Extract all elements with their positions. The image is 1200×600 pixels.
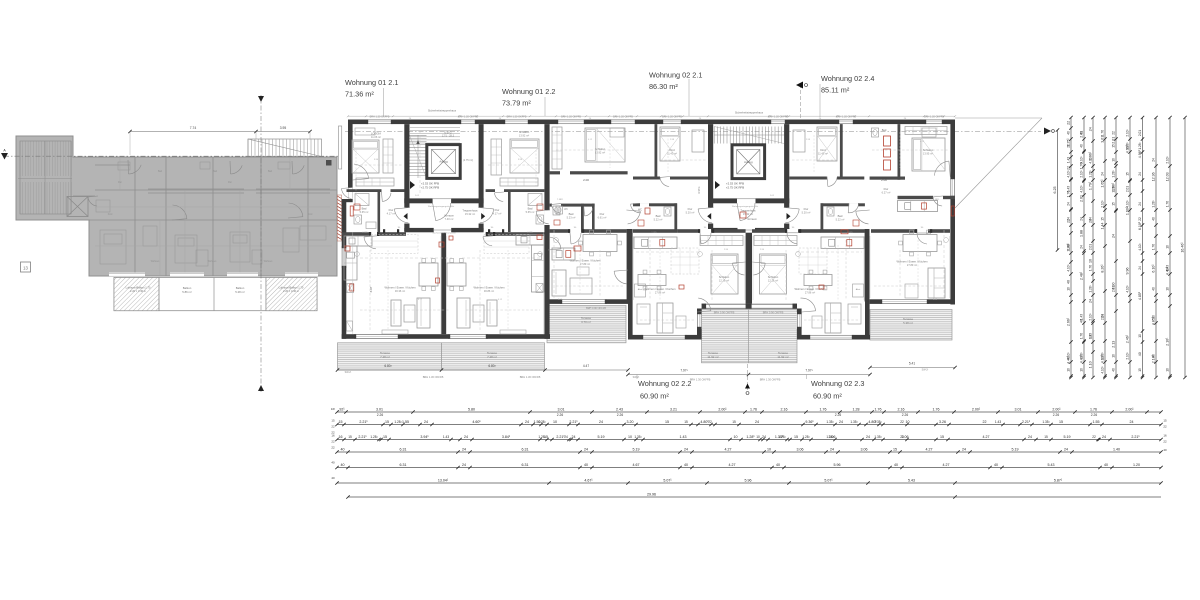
svg-text:Wohnung 02 2.3: Wohnung 02 2.3 — [811, 379, 864, 388]
svg-text:24: 24 — [1080, 217, 1084, 221]
svg-text:Bad: Bad — [158, 171, 163, 173]
svg-text:10: 10 — [1112, 354, 1116, 358]
svg-text:10: 10 — [1080, 368, 1084, 372]
svg-text:2.10¹: 2.10¹ — [1166, 156, 1170, 163]
svg-text:2.00¹: 2.00¹ — [972, 408, 981, 412]
svg-text:5.86 m²: 5.86 m² — [182, 290, 192, 294]
svg-text:4.27: 4.27 — [729, 463, 736, 467]
svg-text:Bad: Bad — [838, 214, 843, 218]
svg-text:10: 10 — [1166, 287, 1170, 291]
svg-text:24: 24 — [1064, 448, 1068, 452]
svg-text:7.385¹: 7.385¹ — [933, 198, 939, 201]
svg-text:Wohnung 02 2.4: Wohnung 02 2.4 — [821, 74, 874, 83]
svg-text:40: 40 — [994, 463, 998, 467]
svg-text:2.10¹: 2.10¹ — [1166, 337, 1170, 346]
svg-text:22: 22 — [1067, 121, 1071, 125]
svg-text:Flur: Flur — [495, 208, 500, 212]
svg-text:1.35¹: 1.35¹ — [634, 435, 641, 439]
svg-text:24: 24 — [1138, 172, 1142, 176]
svg-text:2.46¹: 2.46¹ — [1126, 334, 1130, 343]
svg-text:4.10¹: 4.10¹ — [1126, 200, 1130, 207]
svg-text:Luftraum/Balkon 1.70: Luftraum/Balkon 1.70 — [279, 286, 304, 290]
svg-text:22: 22 — [1163, 425, 1167, 429]
svg-text:Bad: Bad — [882, 128, 887, 132]
svg-text:1.76: 1.76 — [1152, 244, 1156, 250]
svg-text:Wohnung 01 2.1: Wohnung 01 2.1 — [345, 78, 398, 87]
svg-text:16.46¹: 16.46¹ — [1181, 242, 1185, 253]
svg-text:2.10¹: 2.10¹ — [1089, 313, 1093, 320]
svg-text:24: 24 — [462, 463, 466, 467]
svg-text:BRH 1.20 OKFFB: BRH 1.20 OKFFB — [924, 115, 944, 118]
svg-text:BRH 1.30 OKFFB: BRH 1.30 OKFFB — [423, 375, 444, 379]
svg-text:Schlafen: Schlafen — [595, 147, 606, 151]
svg-text:29.96: 29.96 — [647, 493, 656, 497]
svg-text:6.80²: 6.80² — [488, 364, 495, 368]
svg-text:11.43 m²: 11.43 m² — [667, 152, 677, 156]
svg-text:22: 22 — [708, 420, 712, 424]
svg-text:40: 40 — [1152, 354, 1156, 358]
svg-text:1.28¹: 1.28¹ — [1138, 142, 1142, 149]
svg-text:16: 16 — [339, 435, 343, 439]
svg-text:2.21¹: 2.21¹ — [1131, 435, 1140, 439]
svg-text:24: 24 — [525, 420, 529, 424]
svg-text:1.43: 1.43 — [1080, 314, 1084, 320]
svg-text:15: 15 — [383, 435, 387, 439]
svg-text:4.47: 4.47 — [583, 364, 589, 368]
svg-text:22: 22 — [1067, 144, 1071, 148]
svg-text:1.76: 1.76 — [1089, 265, 1093, 271]
svg-text:3.21: 3.21 — [670, 408, 677, 412]
svg-text:2.10¹: 2.10¹ — [1080, 170, 1084, 177]
svg-text:10: 10 — [1138, 334, 1142, 338]
svg-text:(2.75 m²): (2.75 m²) — [463, 159, 473, 162]
svg-text:4.10¹: 4.10¹ — [1126, 285, 1130, 292]
svg-text:1.40: 1.40 — [1113, 448, 1120, 452]
svg-text:2.26: 2.26 — [557, 413, 564, 417]
svg-text:15: 15 — [339, 420, 343, 424]
svg-text:1.20: 1.20 — [1133, 463, 1140, 467]
svg-text:2.26: 2.26 — [1091, 413, 1098, 417]
svg-text:Vorraum: Vorraum — [747, 217, 757, 221]
svg-text:24: 24 — [962, 448, 966, 452]
svg-text:1.28¹: 1.28¹ — [778, 435, 785, 439]
svg-text:40: 40 — [1138, 352, 1142, 356]
svg-text:40: 40 — [1104, 463, 1108, 467]
svg-text:4.27: 4.27 — [725, 448, 732, 452]
svg-text:24: 24 — [1067, 217, 1071, 221]
svg-text:40: 40 — [894, 463, 898, 467]
svg-text:40: 40 — [341, 463, 345, 467]
svg-text:Flur: Flur — [804, 207, 809, 211]
svg-text:2.385: 2.385 — [847, 232, 853, 234]
svg-text:60.90 m²: 60.90 m² — [640, 392, 669, 401]
svg-text:1.28¹: 1.28¹ — [826, 435, 833, 439]
svg-text:BRH 1.20 OKFFB: BRH 1.20 OKFFB — [458, 115, 478, 118]
svg-text:1.43: 1.43 — [1067, 186, 1071, 192]
svg-text:15: 15 — [684, 420, 688, 424]
svg-text:1.76: 1.76 — [933, 408, 940, 412]
svg-text:24: 24 — [564, 435, 568, 439]
svg-text:40: 40 — [1152, 287, 1156, 291]
svg-text:6.31: 6.31 — [400, 463, 407, 467]
svg-text:SW-2¹: SW-2¹ — [922, 369, 929, 372]
svg-text:2.43: 2.43 — [616, 408, 623, 412]
svg-text:Bad: Bad — [656, 214, 661, 218]
svg-text:2.01: 2.01 — [1138, 130, 1142, 136]
svg-text:1.35¹: 1.35¹ — [1042, 420, 1049, 424]
svg-text:5.07¹: 5.07¹ — [824, 479, 833, 483]
svg-text:BRH 1.20 OKFFB: BRH 1.20 OKFFB — [613, 115, 633, 118]
svg-text:10: 10 — [1152, 315, 1156, 319]
svg-text:13.04¹: 13.04¹ — [438, 479, 449, 483]
svg-text:17/1 · 28.3: 17/1 · 28.3 — [442, 135, 455, 138]
svg-text:22: 22 — [331, 425, 335, 429]
svg-text:2.66¹: 2.66¹ — [1067, 317, 1071, 326]
svg-text:7.48 m²: 7.48 m² — [380, 355, 390, 359]
svg-text:1.55: 1.55 — [1093, 420, 1100, 424]
svg-text:24: 24 — [1138, 202, 1142, 206]
svg-text:BRH 1.20 OKFFB: BRH 1.20 OKFFB — [662, 115, 682, 118]
svg-text:27.86 m²: 27.86 m² — [805, 291, 815, 295]
svg-text:4.10¹: 4.10¹ — [1101, 366, 1105, 373]
svg-text:22: 22 — [900, 420, 904, 424]
svg-text:1.35¹: 1.35¹ — [826, 420, 833, 424]
svg-text:24: 24 — [1028, 435, 1032, 439]
svg-text:1.28¹: 1.28¹ — [1112, 185, 1116, 192]
svg-text:22: 22 — [1112, 131, 1116, 135]
svg-text:2.00¹: 2.00¹ — [1052, 408, 1061, 412]
svg-text:+2.75 OK RFB: +2.75 OK RFB — [726, 185, 744, 189]
svg-text:24: 24 — [1089, 127, 1093, 131]
svg-text:2.48¹: 2.48¹ — [1080, 271, 1084, 280]
svg-text:10: 10 — [1112, 158, 1116, 162]
svg-text:6.25: 6.25 — [1053, 187, 1057, 194]
svg-text:Kind: Kind — [108, 214, 113, 216]
svg-text:2.385: 2.385 — [362, 232, 368, 234]
svg-text:1.76: 1.76 — [1101, 130, 1105, 136]
svg-text:Flur: Flur — [600, 212, 605, 216]
svg-text:40: 40 — [1067, 280, 1071, 284]
svg-text:27.89 m²: 27.89 m² — [580, 262, 590, 266]
svg-text:Bad: Bad — [569, 212, 574, 216]
svg-text:4.10¹: 4.10¹ — [1080, 156, 1084, 163]
svg-text:1.88: 1.88 — [1080, 230, 1084, 237]
svg-text:1.28¹: 1.28¹ — [1112, 170, 1116, 177]
svg-text:27.89 m²: 27.89 m² — [907, 263, 917, 267]
svg-text:60.90 m²: 60.90 m² — [813, 392, 842, 401]
svg-text:3.06: 3.06 — [861, 448, 868, 452]
svg-text:5.22 m²: 5.22 m² — [654, 217, 663, 221]
svg-text:Wohnen: Wohnen — [264, 261, 273, 263]
svg-text:24: 24 — [755, 420, 759, 424]
svg-text:4.10¹: 4.10¹ — [1067, 170, 1071, 177]
svg-text:1.28¹: 1.28¹ — [538, 420, 545, 424]
svg-text:Wohnungseingangstür Wst: Wohnungseingangstür Wst — [428, 205, 455, 208]
svg-text:4.10¹: 4.10¹ — [1138, 243, 1142, 250]
svg-text:Bad: Bad — [528, 206, 533, 210]
svg-text:22: 22 — [331, 440, 335, 444]
svg-text:15: 15 — [1101, 217, 1105, 221]
svg-text:2.20 × 3.30 m: 2.20 × 3.30 m — [283, 289, 299, 293]
svg-text:2.26: 2.26 — [377, 413, 384, 417]
svg-text:6.31: 6.31 — [400, 448, 407, 452]
svg-text:15: 15 — [1163, 419, 1167, 423]
svg-text:12.03: 12.03 — [1166, 172, 1170, 181]
svg-text:BRH 1.30 OKFFB: BRH 1.30 OKFFB — [520, 375, 541, 379]
svg-text:2.26: 2.26 — [617, 413, 624, 417]
svg-text:2.10¹: 2.10¹ — [1126, 352, 1130, 359]
svg-text:1.28¹: 1.28¹ — [746, 435, 755, 439]
svg-text:1.43: 1.43 — [443, 435, 449, 439]
svg-text:24: 24 — [830, 448, 834, 452]
svg-text:13: 13 — [23, 265, 28, 270]
svg-text:10: 10 — [1166, 245, 1170, 249]
svg-text:9.36¹: 9.36¹ — [805, 420, 814, 424]
svg-text:12.36: 12.36 — [1152, 172, 1156, 181]
svg-text:22: 22 — [983, 420, 987, 424]
svg-text:5.22 m²: 5.22 m² — [836, 217, 845, 221]
svg-text:7.40 m²: 7.40 m² — [445, 217, 454, 221]
svg-text:10: 10 — [553, 420, 557, 424]
svg-text:2.01: 2.01 — [1126, 186, 1130, 192]
svg-text:BRH 1.30 OKFFB: BRH 1.30 OKFFB — [690, 378, 711, 382]
svg-text:15: 15 — [1138, 368, 1142, 372]
svg-text:4.27: 4.27 — [983, 435, 990, 439]
svg-text:Flur: Flur — [228, 181, 232, 184]
svg-text:6.31: 6.31 — [522, 448, 529, 452]
svg-text:40: 40 — [1152, 217, 1156, 221]
svg-text:1.28¹: 1.28¹ — [802, 435, 809, 439]
svg-text:1.76: 1.76 — [1080, 333, 1084, 339]
svg-text:2.26: 2.26 — [835, 413, 842, 417]
svg-text:2.01: 2.01 — [1089, 244, 1093, 250]
svg-text:2.26: 2.26 — [902, 413, 909, 417]
svg-text:1.55: 1.55 — [402, 420, 409, 424]
svg-text:13.92 m²: 13.92 m² — [519, 134, 529, 138]
svg-text:24: 24 — [866, 435, 870, 439]
svg-text:5.23 m²: 5.23 m² — [567, 216, 576, 220]
svg-text:6.27 m²: 6.27 m² — [882, 191, 891, 195]
svg-text:Flur: Flur — [884, 187, 889, 191]
svg-text:1.28¹: 1.28¹ — [370, 435, 377, 439]
svg-text:5.19: 5.19 — [1064, 435, 1071, 439]
svg-text:10: 10 — [767, 448, 771, 452]
svg-text:1.43: 1.43 — [1166, 265, 1170, 271]
svg-text:2.21¹: 2.21¹ — [1022, 420, 1031, 424]
svg-text:1.65¹: 1.65¹ — [1101, 179, 1105, 188]
svg-text:5.87¹: 5.87¹ — [1054, 479, 1063, 483]
svg-text:Bad: Bad — [362, 206, 367, 210]
svg-text:Aufzug: Aufzug — [439, 160, 448, 164]
svg-text:24: 24 — [684, 448, 688, 452]
svg-text:1.79¹: 1.79¹ — [1089, 181, 1093, 190]
svg-text:Nachweisverfahrung Wst: Nachweisverfahrung Wst — [432, 232, 456, 235]
svg-text:7.97²: 7.97² — [805, 368, 812, 372]
svg-text:10: 10 — [1067, 368, 1071, 372]
svg-text:1.10: 1.10 — [1089, 361, 1093, 368]
svg-text:24: 24 — [584, 448, 588, 452]
svg-text:4.17 m²: 4.17 m² — [493, 212, 502, 216]
svg-text:71.36 m²: 71.36 m² — [345, 90, 374, 99]
svg-text:5.38 m²: 5.38 m² — [903, 321, 913, 325]
svg-text:Wohnen: Wohnen — [151, 261, 160, 263]
svg-text:10: 10 — [1067, 287, 1071, 291]
svg-text:30.36 m²: 30.36 m² — [395, 289, 405, 293]
svg-text:BRH 1.20 OKFFB: BRH 1.20 OKFFB — [768, 115, 788, 118]
svg-text:15: 15 — [348, 435, 352, 439]
svg-text:4.17 m²: 4.17 m² — [387, 212, 396, 216]
svg-text:24: 24 — [599, 420, 603, 424]
svg-text:1.28¹: 1.28¹ — [1080, 352, 1084, 359]
svg-text:7.385¹: 7.385¹ — [557, 198, 563, 201]
svg-text:2.16: 2.16 — [781, 408, 788, 412]
svg-text:4.10¹: 4.10¹ — [1080, 185, 1084, 192]
svg-text:40: 40 — [584, 463, 588, 467]
svg-text:Wohnen / Essen / Küchen: Wohnen / Essen / Küchen — [384, 285, 416, 289]
svg-text:6.61 m²: 6.61 m² — [598, 216, 607, 220]
svg-text:Wohnen / Essen / Küchen: Wohnen / Essen / Küchen — [473, 285, 505, 289]
svg-text:11.43 m²: 11.43 m² — [818, 152, 828, 156]
svg-text:22: 22 — [1092, 435, 1096, 439]
svg-text:15: 15 — [794, 435, 798, 439]
svg-text:40: 40 — [776, 463, 780, 467]
svg-text:Wohnung 02 2.2: Wohnung 02 2.2 — [638, 379, 691, 388]
svg-text:Abst: Abst — [638, 288, 643, 291]
svg-text:6.10¹: 6.10¹ — [1152, 264, 1156, 273]
svg-text:WC: WC — [564, 209, 568, 211]
svg-text:1.35¹: 1.35¹ — [874, 435, 881, 439]
svg-text:5.96: 5.96 — [834, 463, 841, 467]
svg-text:24: 24 — [1152, 158, 1156, 162]
svg-text:Wohnung 01 2.2: Wohnung 01 2.2 — [502, 87, 555, 96]
svg-text:5.96: 5.96 — [745, 479, 752, 483]
svg-text:15: 15 — [1112, 144, 1116, 148]
svg-text:1.43: 1.43 — [680, 435, 687, 439]
svg-text:7.74: 7.74 — [190, 126, 197, 130]
svg-text:15: 15 — [940, 435, 944, 439]
svg-text:Wohnen / Essen / Küchen: Wohnen / Essen / Küchen — [644, 287, 676, 291]
svg-text:Wohnen: Wohnen — [208, 261, 217, 263]
svg-text:24: 24 — [1067, 202, 1071, 206]
svg-text:5.19: 5.19 — [1012, 448, 1019, 452]
svg-text:1.43: 1.43 — [1067, 244, 1071, 250]
svg-text:1.28¹: 1.28¹ — [538, 435, 545, 439]
svg-text:Flur: Flur — [389, 208, 394, 212]
svg-text:2.00: 2.00 — [583, 178, 589, 182]
svg-text:5.65 m²: 5.65 m² — [526, 210, 535, 214]
svg-text:22: 22 — [331, 431, 335, 435]
svg-text:85.11 m²: 85.11 m² — [821, 86, 850, 95]
svg-text:15: 15 — [385, 420, 389, 424]
svg-text:3.94¹: 3.94¹ — [420, 435, 429, 439]
svg-text:40: 40 — [1163, 448, 1167, 452]
svg-text:4.10¹: 4.10¹ — [1067, 352, 1071, 359]
svg-text:BRH 0.90 OKFFB: BRH 0.90 OKFFB — [714, 311, 735, 315]
svg-text:15: 15 — [732, 420, 736, 424]
svg-text:1.35¹: 1.35¹ — [850, 420, 857, 424]
svg-text:40: 40 — [1112, 368, 1116, 372]
svg-text:2.10¹: 2.10¹ — [1126, 129, 1130, 136]
svg-text:5.41: 5.41 — [909, 361, 915, 365]
svg-text:9.96: 9.96 — [1126, 268, 1130, 275]
svg-text:3.70 m²: 3.70 m² — [581, 320, 591, 324]
svg-text:Flur: Flur — [118, 181, 122, 184]
svg-text:15: 15 — [893, 448, 897, 452]
svg-text:Wohnungseingangstür Wst: Wohnungseingangstür Wst — [732, 205, 759, 208]
svg-text:40: 40 — [684, 463, 688, 467]
svg-text:15: 15 — [1059, 420, 1063, 424]
svg-text:Bad: Bad — [268, 171, 273, 173]
svg-text:1.28¹: 1.28¹ — [394, 420, 401, 424]
svg-text:3.01: 3.01 — [558, 408, 565, 412]
svg-text:2.21¹: 2.21¹ — [358, 435, 367, 439]
svg-text:.92¹: .92¹ — [338, 408, 345, 412]
svg-text:24: 24 — [1080, 245, 1084, 249]
svg-text:Kind: Kind — [308, 214, 313, 216]
svg-text:15: 15 — [665, 420, 669, 424]
svg-text:1.76: 1.76 — [750, 408, 757, 412]
svg-text:3.95: 3.95 — [280, 126, 287, 130]
svg-text:Abst: Abst — [856, 288, 861, 291]
svg-text:1.76: 1.76 — [820, 408, 827, 412]
svg-text:5.20 m²: 5.20 m² — [802, 211, 811, 215]
svg-text:15: 15 — [1112, 202, 1116, 206]
svg-text:15.32 m²: 15.32 m² — [465, 212, 475, 216]
svg-text:1.76: 1.76 — [875, 408, 882, 412]
svg-text:2.21¹: 2.21¹ — [569, 420, 578, 424]
svg-text:10: 10 — [1166, 368, 1170, 372]
svg-text:13.92 m²: 13.92 m² — [595, 151, 605, 155]
svg-text:16: 16 — [1163, 434, 1167, 438]
svg-text:10: 10 — [734, 435, 738, 439]
svg-text:2.385: 2.385 — [651, 232, 657, 234]
svg-text:5.20 m²: 5.20 m² — [686, 211, 695, 215]
svg-text:1.43: 1.43 — [995, 420, 1001, 424]
svg-text:1.28¹: 1.28¹ — [1089, 285, 1093, 292]
svg-text:Aufzug: Aufzug — [744, 160, 753, 164]
svg-text:15: 15 — [331, 419, 335, 423]
svg-text:1.28¹: 1.28¹ — [1101, 352, 1105, 359]
svg-text:15.32 m²: 15.32 m² — [743, 212, 753, 216]
svg-text:4.67: 4.67 — [633, 463, 640, 467]
svg-text:BRH 1.20 OKFFB: BRH 1.20 OKFFB — [507, 115, 527, 118]
svg-text:10: 10 — [756, 435, 760, 439]
svg-text:24: 24 — [1130, 420, 1134, 424]
svg-text:5.19: 5.19 — [633, 448, 640, 452]
svg-text:73.79 m²: 73.79 m² — [502, 99, 531, 108]
svg-text:24: 24 — [1089, 217, 1093, 221]
svg-text:4.10¹: 4.10¹ — [1089, 156, 1093, 163]
svg-text:11.92 m²: 11.92 m² — [707, 355, 718, 359]
svg-text:5.43: 5.43 — [1048, 463, 1055, 467]
svg-text:7.48 m²: 7.48 m² — [487, 355, 497, 359]
svg-text:Luftraum/Balkon 1.70: Luftraum/Balkon 1.70 — [126, 286, 151, 290]
svg-text:3.01: 3.01 — [376, 408, 383, 412]
svg-text:2.26: 2.26 — [1053, 413, 1060, 417]
svg-text:2.10¹: 2.10¹ — [1101, 200, 1105, 207]
svg-text:Schlafen: Schlafen — [519, 130, 530, 134]
svg-text:Sicherheitstreppenhaus: Sicherheitstreppenhaus — [428, 109, 457, 113]
svg-text:5.19: 5.19 — [598, 435, 605, 439]
svg-text:2.01: 2.01 — [1112, 286, 1116, 292]
svg-text:+2.75 OK RFB: +2.75 OK RFB — [421, 185, 439, 189]
svg-text:1.28¹: 1.28¹ — [1126, 142, 1130, 149]
svg-text:40: 40 — [331, 461, 335, 465]
svg-text:Vorraum: Vorraum — [444, 213, 454, 217]
svg-text:22: 22 — [331, 446, 335, 450]
svg-text:4.60¹: 4.60¹ — [472, 420, 481, 424]
svg-text:2.16: 2.16 — [898, 408, 905, 412]
